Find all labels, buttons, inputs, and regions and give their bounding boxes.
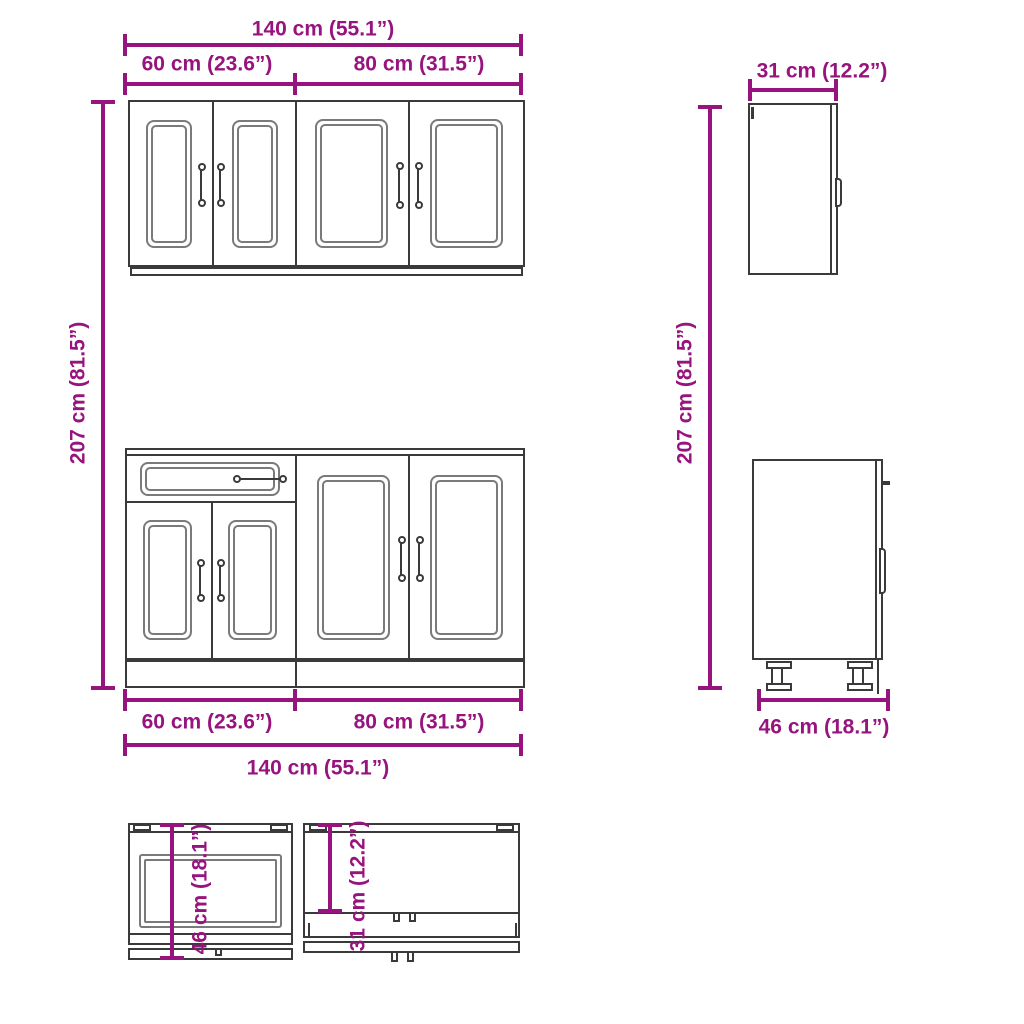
dim-label-base-right-width: 80 cm (31.5”)	[354, 712, 485, 733]
wall-top-front-edge-line	[305, 831, 518, 833]
wall-top-door-hinge-2	[407, 953, 414, 962]
wall-top-bracket-right	[507, 923, 517, 938]
dim-label-base-total-width: 140 cm (55.1”)	[247, 758, 389, 779]
base-side-foot-right	[852, 667, 864, 685]
dim-label-base-left-width: 60 cm (23.6”)	[142, 712, 273, 733]
dim-label-height-left: 207 cm (81.5”)	[68, 322, 89, 464]
dim-label-wall-left-width: 60 cm (23.6”)	[142, 54, 273, 75]
wall-door-panel-4	[430, 119, 503, 248]
dim-line-top-wall-depth	[328, 823, 332, 913]
wall-door-handle-3	[398, 169, 400, 202]
wall-side-hinge-mark	[751, 107, 754, 119]
base-side-hinge-nub	[883, 481, 890, 485]
base-plinth-divider	[295, 662, 297, 686]
base-top-corner-tab-left	[133, 824, 151, 831]
wall-door-handle-2	[219, 170, 221, 200]
dim-line-base-total-width	[123, 743, 523, 747]
cabinet-dimension-diagram: 140 cm (55.1”) 60 cm (23.6”) 80 cm (31.5…	[0, 0, 1024, 1024]
base-drawer-handle	[240, 478, 280, 480]
wall-door-panel-1	[146, 120, 192, 248]
wall-top-corner-tab-right	[496, 824, 514, 831]
dim-line-wall-total-width	[123, 43, 523, 47]
base-door-panel-1	[143, 520, 192, 640]
dim-label-base-depth: 46 cm (18.1”)	[759, 717, 890, 738]
base-door-handle-3	[400, 543, 402, 575]
base-door-handle-2	[219, 566, 221, 595]
base-door-handle-1	[199, 566, 201, 595]
wall-side-handle	[835, 178, 842, 207]
dim-line-height-left	[101, 100, 105, 690]
dim-label-top-wall-depth: 31 cm (12.2”)	[348, 821, 369, 952]
wall-top-door-front	[303, 941, 520, 953]
base-door-handle-4	[418, 543, 420, 575]
base-side-back-edge	[877, 660, 879, 694]
wall-door-panel-2	[232, 120, 278, 248]
dim-line-top-base-depth	[170, 823, 174, 960]
base-door-panel-2	[228, 520, 277, 640]
wall-door-handle-1	[200, 170, 202, 200]
base-left-door-divider	[211, 501, 213, 658]
dim-line-wall-depth	[748, 88, 838, 92]
dim-line-base-split-width	[123, 698, 523, 702]
base-top-hinge-mark	[215, 948, 222, 956]
dim-label-wall-depth: 31 cm (12.2”)	[757, 61, 888, 82]
base-side-door-edge	[875, 461, 877, 658]
dim-line-height-right	[708, 105, 712, 690]
wall-door-panel-3	[315, 119, 388, 248]
base-cabinet-side-view	[752, 459, 883, 660]
base-plinth	[125, 660, 525, 688]
dim-tick-base-split	[293, 689, 297, 711]
base-cabinet-divider	[295, 456, 297, 658]
wall-top-hinge-mark-2	[409, 914, 416, 922]
base-side-handle	[879, 548, 886, 594]
wall-top-hinge-mark-1	[393, 914, 400, 922]
base-side-foot-left	[771, 667, 783, 685]
base-top-corner-tab-right	[270, 824, 288, 831]
base-right-door-divider	[408, 456, 410, 658]
dim-line-wall-split-width	[123, 82, 523, 86]
base-door-panel-3	[317, 475, 390, 640]
dim-label-height-right: 207 cm (81.5”)	[675, 322, 696, 464]
wall-door-handle-4	[417, 169, 419, 202]
wall-top-bracket-left	[308, 923, 318, 938]
wall-right-door-divider	[408, 102, 410, 265]
base-door-panel-4	[430, 475, 503, 640]
dim-label-wall-right-width: 80 cm (31.5”)	[354, 54, 485, 75]
wall-top-door-hinge-1	[391, 953, 398, 962]
dim-line-base-depth	[757, 698, 890, 702]
dim-tick-wall-split	[293, 73, 297, 95]
wall-cabinet-divider	[295, 102, 297, 265]
wall-left-door-divider	[212, 102, 214, 265]
dim-label-top-base-depth: 46 cm (18.1”)	[190, 824, 211, 955]
wall-top-view	[303, 823, 520, 938]
wall-cabinets-bottom-panel	[130, 267, 523, 276]
wall-cabinet-side-view	[748, 103, 838, 275]
wall-side-door-edge	[830, 105, 832, 273]
dim-label-wall-total-width: 140 cm (55.1”)	[252, 19, 394, 40]
